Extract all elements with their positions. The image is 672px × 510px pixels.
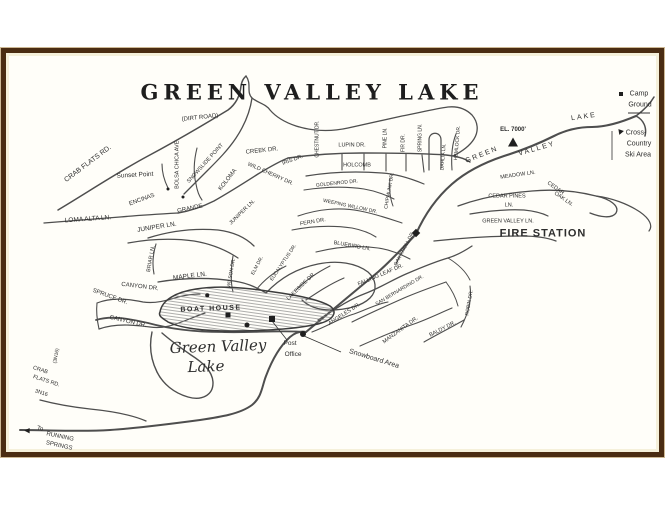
map-label-post: Post bbox=[283, 341, 296, 348]
map-label-office: Office bbox=[285, 352, 302, 359]
dot-marker bbox=[300, 331, 306, 337]
dot-marker bbox=[205, 293, 209, 297]
square-marker bbox=[226, 313, 231, 318]
square-marker bbox=[619, 92, 623, 96]
road bbox=[470, 210, 548, 216]
map-label-camp: Camp bbox=[630, 91, 649, 98]
map-title: GREEN VALLEY LAKE bbox=[140, 80, 483, 105]
map-label-ski-area: Ski Area bbox=[625, 152, 651, 159]
map-label-country: Country bbox=[627, 141, 652, 148]
map-label-cedar-pines: CEDAR PINES bbox=[488, 194, 525, 200]
map-label-cross: Cross- bbox=[626, 130, 647, 137]
road bbox=[162, 164, 168, 188]
map-label-green-valley-ln: GREEN VALLEY LN. bbox=[482, 219, 533, 225]
road bbox=[97, 303, 99, 329]
map-label-to: To bbox=[36, 425, 43, 432]
arrow-left-marker: ◀ bbox=[24, 428, 29, 435]
map-label-lupin-dr: LUPIN DR. bbox=[338, 143, 365, 149]
dot-marker bbox=[167, 188, 170, 191]
road bbox=[148, 229, 254, 246]
road bbox=[128, 239, 238, 258]
map-label-holcomb: HOLCOMB bbox=[343, 163, 371, 169]
road-network bbox=[0, 0, 672, 510]
road bbox=[40, 400, 146, 421]
map-label-green-valley: Green Valley bbox=[169, 338, 266, 356]
map-label-ln: LN. bbox=[505, 203, 514, 209]
map-label-bolsa-chica-ave: BOLSA CHICA AVE. bbox=[175, 139, 181, 189]
map-label-lake: Lake bbox=[187, 359, 224, 375]
map-label-spring-ln: SPRING LN. bbox=[419, 124, 424, 152]
square-marker bbox=[269, 316, 275, 322]
page: { "title": "GREEN VALLEY LAKE", "colors"… bbox=[0, 0, 672, 510]
road bbox=[304, 187, 394, 199]
triangle-marker bbox=[508, 138, 518, 147]
map-label-el-7000: EL. 7000' bbox=[500, 127, 526, 133]
map-label-chestnut-dr: CHESTNUT DR. bbox=[316, 120, 321, 157]
dot-marker bbox=[182, 196, 185, 199]
dot-marker bbox=[245, 323, 250, 328]
road bbox=[596, 196, 651, 231]
road bbox=[292, 226, 376, 237]
map-label-fire-station: FIRE STATION bbox=[500, 229, 587, 240]
map-label-pine-ln: PINE LN. bbox=[384, 128, 389, 149]
map-label-ground: Ground bbox=[628, 102, 651, 109]
map-label-fir-dr: FIR DR. bbox=[402, 134, 407, 152]
